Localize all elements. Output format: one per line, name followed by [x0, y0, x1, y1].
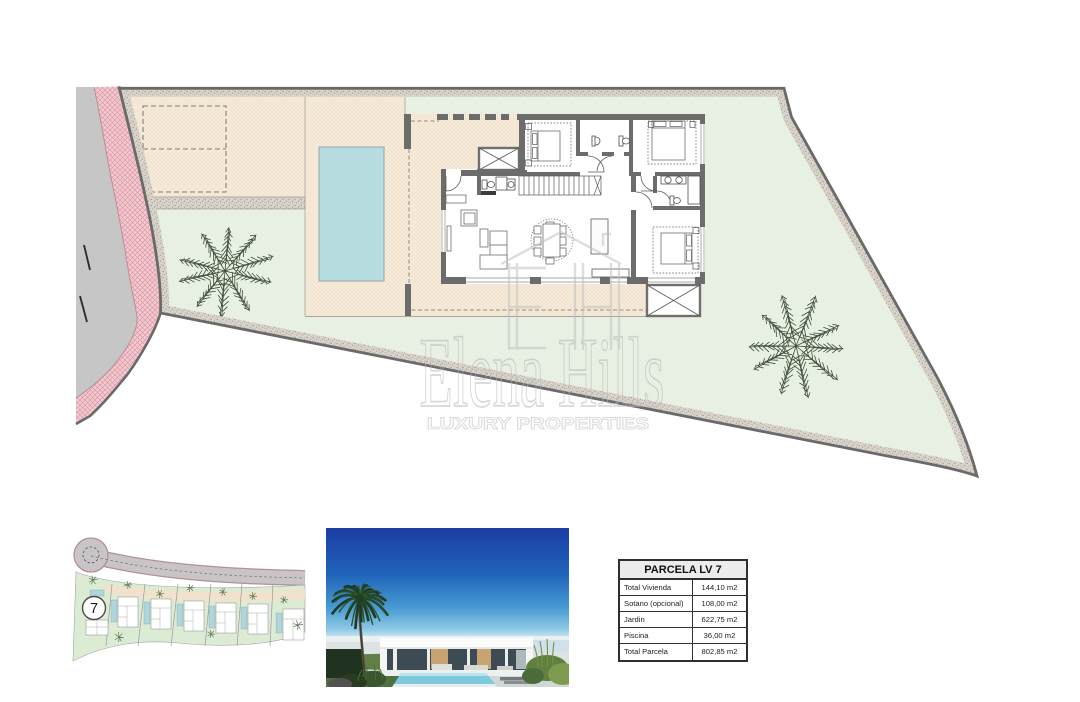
svg-text:LUXURY PROPERTIES: LUXURY PROPERTIES	[427, 415, 649, 433]
svg-text:Elena Hills: Elena Hills	[420, 317, 665, 428]
svg-text:7: 7	[90, 601, 98, 617]
